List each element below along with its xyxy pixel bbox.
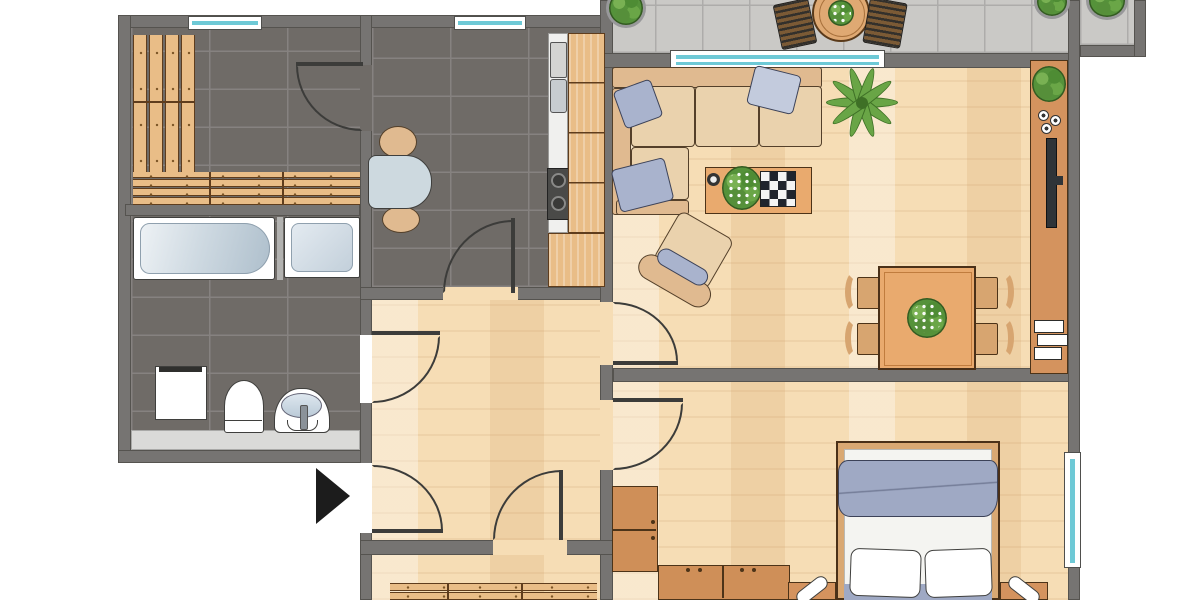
lower-room-bench-seam-1 — [447, 583, 449, 600]
entrance-door-leaf — [372, 529, 443, 533]
lower-room-bench — [390, 583, 597, 600]
lower-room-bench-seam-2 — [521, 583, 523, 600]
sideboard-candle-1 — [1038, 110, 1049, 121]
living-door-leaf — [613, 361, 678, 365]
bathroom-door-leaf — [372, 331, 440, 335]
bath-shower-divider — [277, 217, 283, 280]
utility-window-glass — [192, 21, 258, 25]
bathtub-basin — [140, 223, 270, 274]
balcony-sliding-window — [670, 50, 885, 68]
bed-blanket — [838, 460, 998, 517]
entrance-arrow-icon — [316, 468, 350, 524]
toilet-seat-line — [225, 420, 262, 421]
sink-bracket — [287, 420, 318, 431]
sideboard-candle-2 — [1050, 115, 1061, 126]
utility-bench-vertical — [133, 35, 195, 173]
wardrobe-bottom-row — [658, 565, 790, 600]
balcony-window-glass-upper — [676, 55, 879, 59]
kitchen-sink-drainer — [550, 42, 567, 78]
bathroom-door-opening — [360, 335, 372, 403]
kitchen-table — [368, 155, 432, 209]
sideboard-book-1 — [1034, 320, 1064, 333]
wardrobe-handle-4 — [698, 568, 702, 572]
utility-door-leaf — [296, 62, 363, 66]
lower-room-door-opening — [493, 540, 567, 555]
wall-hallway-bottom — [360, 540, 613, 555]
entrance-door-opening — [360, 463, 372, 533]
bedroom-window-glass — [1070, 459, 1075, 563]
washing-machine-top-strip — [159, 367, 202, 372]
bathroom-mat — [131, 430, 360, 450]
living-door-opening — [600, 302, 613, 365]
kitchen-stove — [547, 168, 570, 220]
kitchen-window — [454, 16, 526, 30]
bedroom-door-opening — [600, 400, 613, 470]
kitchen-sink-bowl — [550, 79, 567, 113]
sideboard-book-3 — [1034, 347, 1062, 360]
kitchen-chair-top — [379, 126, 417, 158]
sideboard-candle-3 — [1041, 123, 1052, 134]
wardrobe-handle-5 — [740, 568, 744, 572]
palm-plant-center — [856, 97, 868, 109]
balcony-chair-right — [862, 0, 907, 49]
dining-chair-seat-3 — [974, 277, 998, 309]
wardrobe-handle-2 — [651, 536, 655, 540]
utility-window — [188, 16, 262, 30]
sideboard-plant — [1032, 66, 1066, 102]
bed-pillow-right — [924, 548, 993, 598]
wardrobe-handle-3 — [686, 568, 690, 572]
wall-left — [118, 15, 131, 463]
shower-basin — [291, 223, 353, 272]
toilet — [224, 380, 264, 433]
bed-pillow-left — [849, 548, 922, 598]
balcony-window-glass-lower — [676, 62, 879, 65]
sideboard-book-2 — [1037, 334, 1068, 346]
wardrobe-column — [612, 486, 658, 572]
stove-burner-2 — [551, 196, 566, 211]
kitchen-door-leaf — [511, 218, 515, 293]
utility-bench-seam-1 — [209, 172, 211, 205]
lower-room-door-leaf — [559, 470, 563, 540]
floor-plan — [0, 0, 1200, 600]
bedroom-door-leaf — [613, 398, 683, 402]
tv-mount — [1056, 176, 1063, 185]
wardrobe-handle-1 — [651, 520, 655, 524]
dining-table-plant — [907, 298, 947, 338]
shower-tray — [284, 217, 360, 278]
coffee-table-bouquet — [722, 166, 762, 210]
wardrobe-column-seam — [613, 529, 656, 531]
coffee-table-tray — [760, 171, 796, 207]
bathtub — [133, 217, 275, 280]
utility-bench-vertical-seam — [133, 101, 195, 103]
kitchen-chair-bottom — [382, 206, 420, 233]
kitchen-lower-cabinet — [548, 233, 605, 287]
coffee-table-cup-1 — [707, 173, 720, 186]
washing-machine — [155, 366, 207, 420]
kitchen-window-glass — [458, 21, 522, 25]
utility-bench-seam-2 — [282, 172, 284, 205]
utility-bench-horizontal — [133, 172, 360, 205]
balcony-table-plant — [828, 0, 854, 26]
stove-burner-1 — [551, 173, 566, 188]
wall-bath-bottom — [118, 450, 372, 463]
wardrobe-handle-6 — [752, 568, 756, 572]
wall-living-bedroom — [613, 368, 1080, 382]
wardrobe-bottom-divider — [722, 566, 724, 598]
wall-utility-bath-divider — [125, 204, 360, 216]
bedroom-window — [1064, 452, 1081, 568]
wall-neighbor-balcony-right — [1134, 0, 1146, 57]
dining-chair-seat-4 — [974, 323, 998, 355]
kitchen-counter-cabinets — [568, 33, 605, 233]
